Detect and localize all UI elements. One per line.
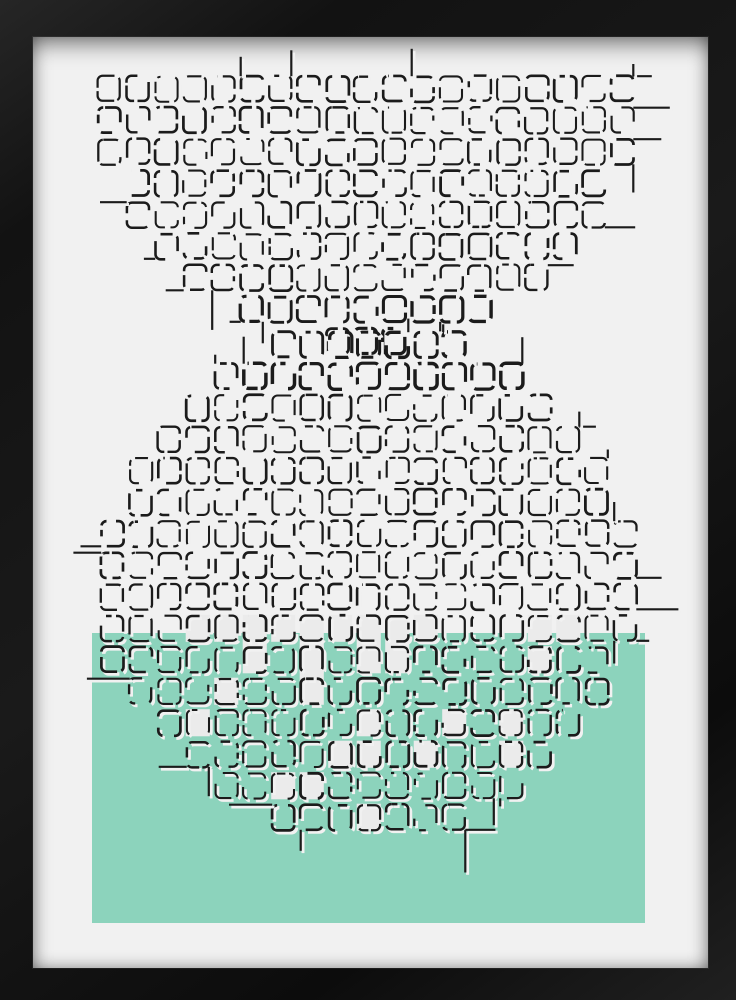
artwork-canvas: [0, 0, 736, 1000]
grid-semicircle: [98, 49, 673, 356]
framed-poster-photo: [0, 0, 736, 1000]
green-rectangle: [92, 633, 645, 923]
